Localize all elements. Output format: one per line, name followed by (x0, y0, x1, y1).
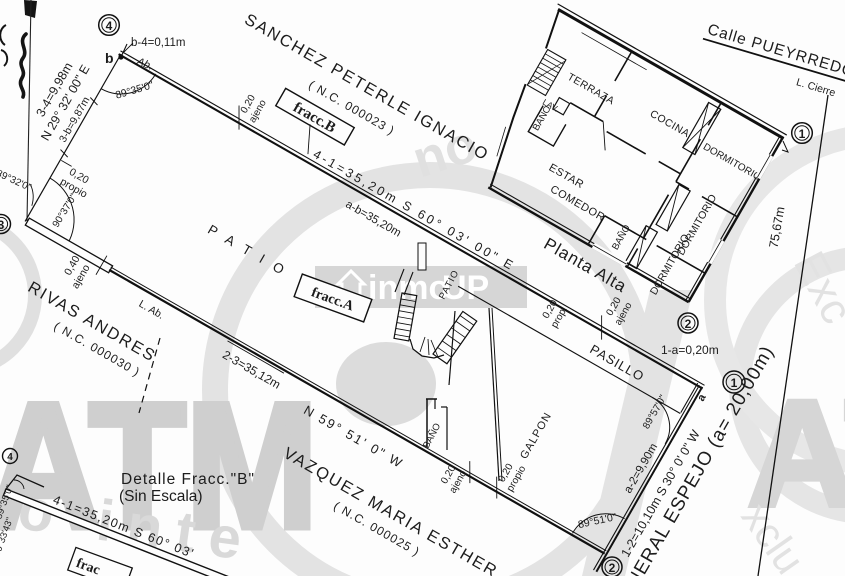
svg-text:1: 1 (799, 127, 806, 141)
svg-text:4: 4 (7, 452, 13, 463)
svg-text:b: b (105, 50, 114, 66)
svg-text:(Sin Escala): (Sin Escala) (119, 488, 203, 505)
svg-text:3: 3 (0, 218, 5, 232)
svg-text:inmo: inmo (368, 269, 449, 307)
svg-text:1-a=0,20m: 1-a=0,20m (661, 343, 719, 357)
svg-text:b-4=0,11m: b-4=0,11m (131, 37, 185, 49)
svg-text:Detalle Fracc."B": Detalle Fracc."B" (121, 471, 255, 488)
svg-text:4: 4 (106, 19, 113, 33)
svg-text:2: 2 (685, 317, 692, 331)
svg-text:2: 2 (609, 561, 616, 575)
